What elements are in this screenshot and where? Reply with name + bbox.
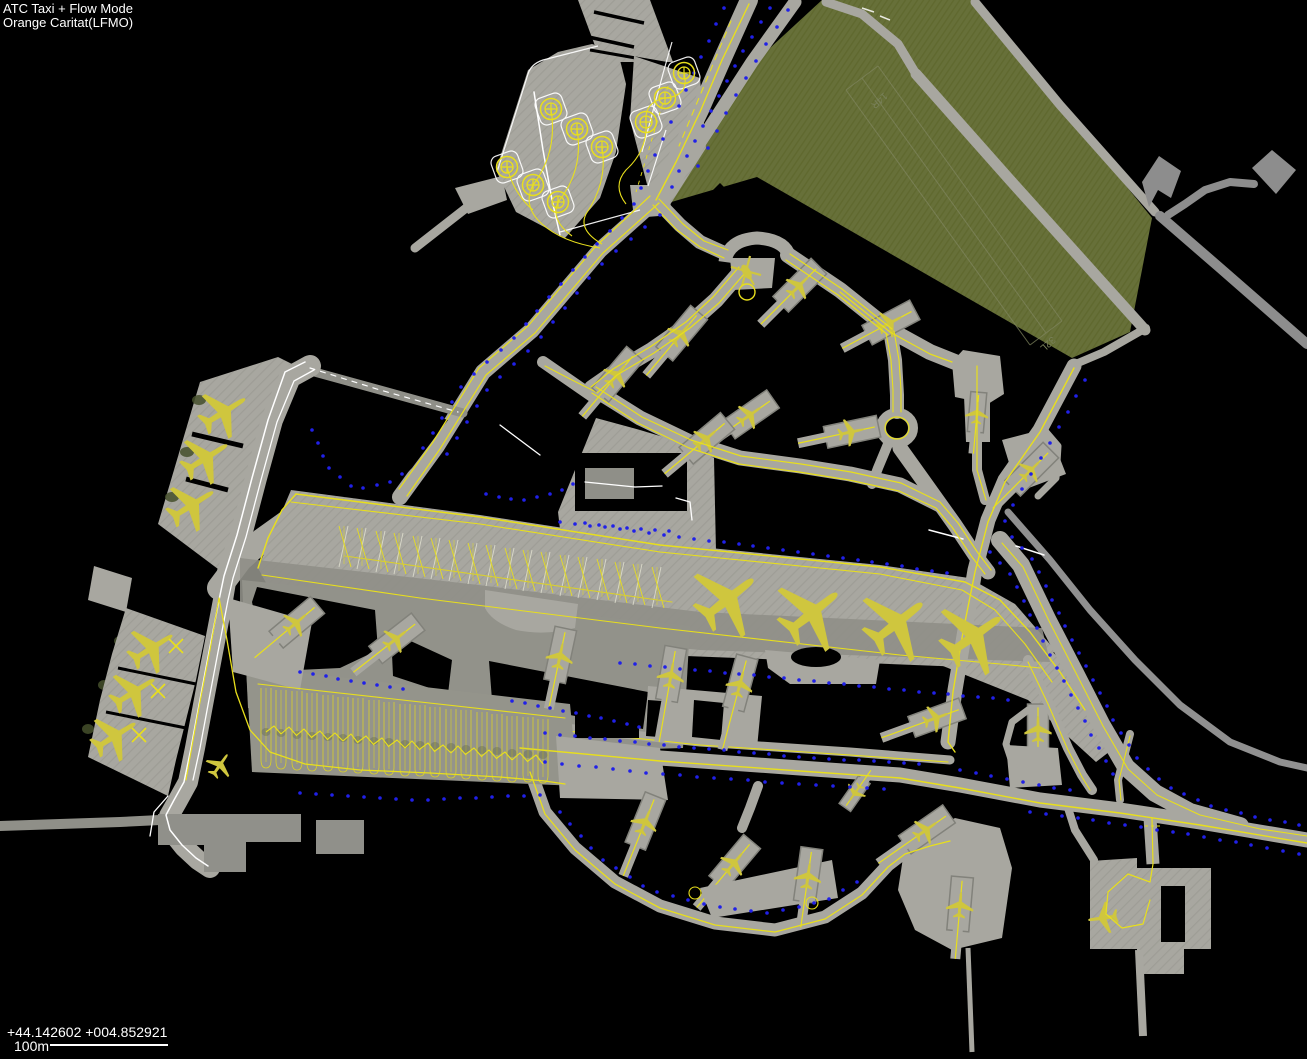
- svg-text:ATC Taxi + Flow Mode: ATC Taxi + Flow Mode: [3, 1, 133, 16]
- svg-text:100m: 100m: [14, 1038, 49, 1054]
- svg-text:Orange Caritat(LFMO): Orange Caritat(LFMO): [3, 15, 133, 30]
